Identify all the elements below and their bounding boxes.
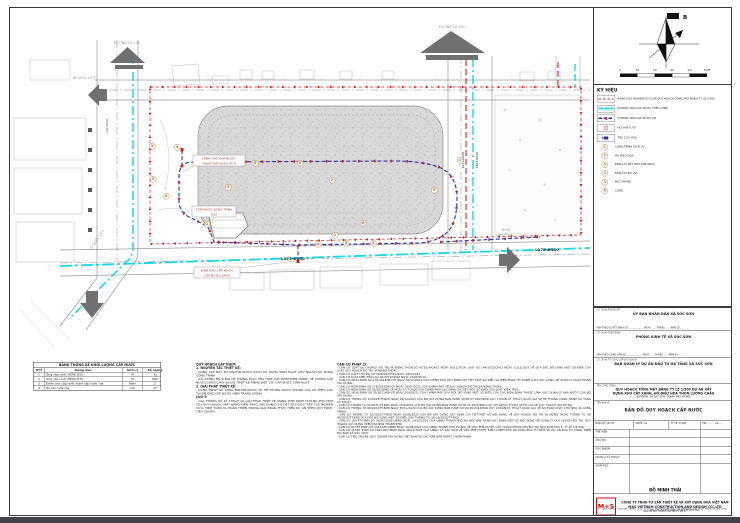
design-notes: QUY HOẠCH CẤP NƯỚC1. NGUYÊN TẮC THIẾT KẾ… bbox=[196, 363, 333, 445]
arrow-left-icon bbox=[88, 84, 99, 106]
organizer-org: BAN QUẢN LÝ DỰ ÁN ĐẦU TƯ HẠ TẦNG XÃ SÓC … bbox=[597, 362, 731, 366]
quantity-table: BẢNG THỐNG KÊ KHỐI LƯỢNG CẤP NƯỚC STT Hạ… bbox=[33, 362, 161, 403]
pipe-label-bottom-2: L173-Ø150 bbox=[535, 247, 559, 252]
sheet-name: BẢN ĐỒ QUY HOẠCH CẤP NƯỚC bbox=[597, 408, 731, 413]
legend-title: KÝ HIỆU bbox=[597, 88, 730, 93]
svg-text:50M: 50M bbox=[704, 68, 711, 72]
approval-note: KÈM THEO QUYẾT ĐỊNH SỐ: ................… bbox=[597, 327, 731, 330]
legend-item: RANH GIỚI NGHIÊN CỨU LẬP QUY HOẠCH TỔNG … bbox=[597, 95, 730, 103]
project-section: TÊN CÔNG TRÌNH QUY HOẠCH TỔNG MẶT BẰNG T… bbox=[594, 384, 732, 401]
north-compass-icon: B bbox=[639, 13, 699, 68]
footer-sheet: BẢN ĐỒ QUY HOẠCH CẤP NƯỚC QH-07 bbox=[598, 511, 732, 514]
legend-numbered-item: 3 BỒN CÂY KẾT HỢP GHẾ NGỒI bbox=[597, 161, 730, 168]
appraisal-section: CƠ QUAN THẨM ĐỊNH PHÒNG KINH TẾ XÃ SÓC S… bbox=[594, 331, 732, 358]
legend-swatch-icon bbox=[597, 95, 615, 103]
legal-line: - CĂN CỨ TIÊU CHUẨN, QUY CHUẨN XÂY DỰNG … bbox=[337, 435, 591, 438]
north-scale-box: B 0 10 20 30 40 50M bbox=[593, 7, 732, 85]
svg-text:30: 30 bbox=[670, 68, 674, 72]
director-name: ĐỖ MINH THÁI bbox=[630, 488, 701, 493]
company-name-vi: CÔNG TY TNHH TƯ VẤN THIẾT KẾ VÀ XÂY DỰNG… bbox=[619, 501, 731, 505]
svg-text:0: 0 bbox=[619, 68, 621, 72]
callout-building-1: CẤP NƯỚC CÔNG TRÌNH bbox=[196, 207, 233, 212]
number-circle-icon: 1 bbox=[602, 144, 609, 151]
svg-text:20: 20 bbox=[653, 68, 657, 72]
sheet-number-cell: BẢN VẼ: QH-07 bbox=[594, 421, 634, 429]
quantity-table-body: 1 Ống cấp nước HDPE D50 M 35 2 Ống cấp n… bbox=[34, 373, 161, 391]
approval-org: ỦY BAN NHÂN DÂN XÃ SÓC SƠN bbox=[597, 312, 731, 316]
callout-waiting-1: ĐIỂM CHỜ CẤP NƯỚC bbox=[202, 156, 235, 161]
appraisal-note: KÈM THEO CÔNG VĂN SỐ: ..................… bbox=[597, 354, 731, 357]
compass-and-scale: B 0 10 20 30 40 50M bbox=[594, 8, 731, 84]
sheet-caption: TÊN BẢN VẼ bbox=[597, 402, 731, 405]
number-circle-icon: 4 bbox=[602, 170, 609, 177]
legend-item: HỐ VAN TƯỚI bbox=[597, 124, 730, 132]
legend-swatch-icon bbox=[597, 134, 615, 142]
role-drawn: THỂ HIỆN bbox=[594, 430, 630, 438]
appraisal-org: PHÒNG KINH TẾ XÃ SÓC SƠN bbox=[597, 335, 731, 339]
pipe-label-right-red: L211-Ø100 bbox=[460, 152, 465, 169]
project-name-2: DỰNG KHU CÂY XANH, HỒ ĐIỀU HÒA THÔN LƯƠN… bbox=[597, 392, 731, 396]
callout-connection-2: CẤP NƯỚC SẠCH bbox=[204, 272, 230, 277]
number-circle-icon: 6 bbox=[602, 188, 609, 195]
pipe-label-right-cyan: L203-Ø100 bbox=[474, 152, 479, 169]
legend-numbered-item: 5 BẬC THANG bbox=[597, 179, 730, 186]
callout-building-2: D32 bbox=[211, 212, 217, 216]
road-label-tl: ĐI TỈNH LỘ 131 bbox=[114, 40, 140, 45]
callout-waiting-2: TRẠM CẤP NƯỚC RỬA bbox=[201, 160, 237, 165]
scale-cell: TỶ LỆ: 1/500 bbox=[669, 421, 701, 429]
sheet-name-section: TÊN BẢN VẼ BẢN ĐỒ QUY HOẠCH CẤP NƯỚC bbox=[594, 401, 732, 421]
road-label-da-phuc-2: ĐA PHÚC bbox=[499, 232, 514, 237]
legal-basis: CĂN CỨ PHÁP LÝ - CĂN CỨ LUẬT QUY HOẠCH Đ… bbox=[337, 363, 591, 447]
legend-numbered-item: 1 CÔNG TRÌNH DỊCH VỤ bbox=[597, 144, 730, 151]
road-label-left: ĐI QUỐC LỘ 3 bbox=[73, 75, 95, 80]
svg-text:40: 40 bbox=[688, 68, 692, 72]
pipe-label-bottom: L173-Ø150 bbox=[281, 256, 305, 261]
number-circle-icon: 3 bbox=[602, 161, 609, 168]
callout-connection-1: ĐIỂM ĐẤU CẤP NƯỚC bbox=[201, 268, 234, 273]
scale-bar: 0 10 20 30 40 50M bbox=[619, 68, 711, 77]
sheet-size-cell: GHÉP: A1 bbox=[634, 421, 669, 429]
bottom-bar bbox=[0, 517, 740, 523]
table-row: 4 Hố van tưới cây Cái 27 bbox=[34, 386, 161, 390]
legend-item: TRỤ CỨU HỎA bbox=[597, 134, 730, 142]
role-director: GIÁM ĐỐC bbox=[594, 464, 630, 494]
note-line: - CÔNG TRÌNH SỬ DỤNG NGUỒN NƯỚC TỪ HỆ TH… bbox=[196, 389, 333, 396]
houses bbox=[88, 128, 92, 232]
role-manager: CHỦ NHIỆM bbox=[594, 447, 630, 455]
legend-item: ĐƯỜNG ỐNG CẤP NƯỚC QH bbox=[597, 115, 730, 123]
arrow-up-top-left-icon bbox=[110, 47, 145, 63]
project-address: ĐỊA ĐIỂM: XÃ SÓC SƠN, THÀNH PHỐ HÀ NỘI bbox=[597, 396, 731, 399]
approval-section: CƠ QUAN PHÊ DUYỆT ỦY BAN NHÂN DÂN XÃ SÓC… bbox=[594, 308, 732, 331]
note-line: - XÂY DỰNG BỔ SUNG HỆ THỐNG PCCC PHÙ HỢP… bbox=[196, 378, 333, 385]
plaza-paths bbox=[158, 120, 195, 215]
arrow-up-top-right-icon bbox=[420, 31, 485, 53]
legend-numbered-item: 2 HỒ ĐIỀU HÒA bbox=[597, 153, 730, 160]
arrow-down-icon bbox=[80, 303, 104, 318]
road-label-tr: ĐI TỈNH LỘ 131 bbox=[439, 24, 465, 29]
north-label: B bbox=[683, 15, 687, 21]
drawing-sheet: ĐI TỈNH LỘ 131 ĐI TỈNH LỘ 131 ĐI QUỐC LỘ… bbox=[0, 0, 740, 523]
dimension-ticks bbox=[170, 77, 550, 80]
signature-table: BẢN VẼ: QH-07 GHÉP: A1 TỶ LỆ: 1/500 HN, … bbox=[594, 421, 732, 494]
legend: KÝ HIỆU RANH GIỚI NGHIÊN CỨU LẬP QUY HOẠ… bbox=[593, 85, 732, 307]
role-lead: CHỦ TRÌ bbox=[594, 438, 630, 446]
legend-numbered-item: 6 CỔNG bbox=[597, 188, 730, 195]
service-building bbox=[208, 213, 248, 244]
svg-text:10: 10 bbox=[635, 68, 639, 72]
pipe-label-left: L29-Ø100 bbox=[104, 119, 109, 134]
legend-item: ĐƯỜNG ỐNG CẤP NƯỚC THEO QHPK bbox=[597, 105, 730, 113]
road-label-da-phuc-1: ĐI XÃ bbox=[502, 227, 512, 232]
organizer-section: CƠ QUAN TỔ CHỨC LẬP QUY HOẠCH BAN QUẢN L… bbox=[594, 358, 732, 384]
legend-swatch-icon bbox=[597, 115, 615, 123]
legend-swatch-icon bbox=[597, 105, 615, 113]
legend-numbered-item: 4 BỒN CÂY BÓ VỈA bbox=[597, 170, 730, 177]
legend-swatch-icon bbox=[597, 124, 615, 132]
title-block: CƠ QUAN PHÊ DUYỆT ỦY BAN NHÂN DÂN XÃ SÓC… bbox=[593, 307, 732, 516]
note-line: - CÁC THÔNG SỐ KỸ THUẬT VÀ GIẢI PHÁP THI… bbox=[196, 399, 333, 413]
number-circle-icon: 5 bbox=[602, 179, 609, 186]
role-qa: QUẢN LÝ KỸ THUẬT bbox=[594, 455, 630, 463]
date-cell: HN, ...... - 20...... bbox=[701, 421, 732, 429]
number-circle-icon: 2 bbox=[602, 153, 609, 160]
